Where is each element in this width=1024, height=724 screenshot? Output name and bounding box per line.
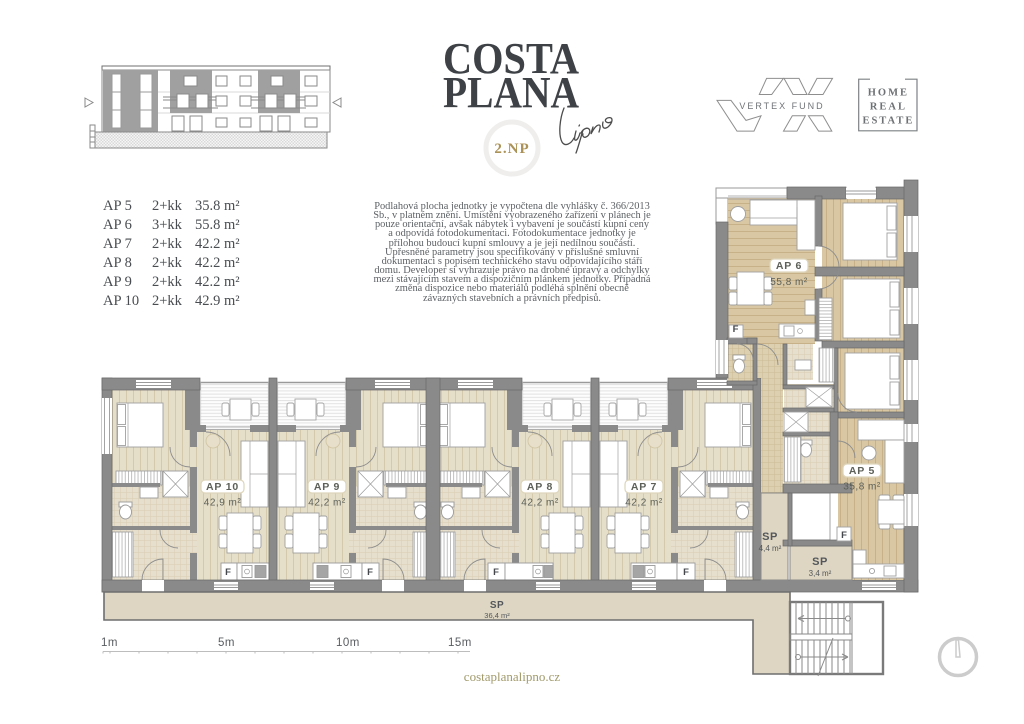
svg-text:F: F (493, 567, 499, 578)
svg-text:SP: SP (490, 600, 504, 611)
svg-text:F: F (841, 530, 847, 541)
svg-text:42,2 m²: 42,2 m² (625, 498, 663, 509)
svg-text:AP 9: AP 9 (314, 481, 340, 493)
svg-text:15m: 15m (448, 637, 472, 649)
svg-text:F: F (225, 567, 231, 578)
svg-text:5m: 5m (218, 637, 235, 649)
svg-text:10m: 10m (336, 637, 360, 649)
svg-text:AP 6: AP 6 (776, 260, 802, 272)
svg-text:42,9 m²: 42,9 m² (204, 498, 242, 509)
svg-text:36,4 m²: 36,4 m² (484, 611, 510, 620)
svg-text:AP 10: AP 10 (206, 481, 239, 493)
svg-text:F: F (367, 567, 373, 578)
svg-text:F: F (733, 324, 739, 335)
svg-text:AP 8: AP 8 (527, 481, 553, 493)
svg-text:35,8 m²: 35,8 m² (843, 482, 881, 493)
svg-text:SP: SP (762, 531, 778, 543)
svg-text:42,2 m²: 42,2 m² (521, 498, 559, 509)
svg-text:3,4 m²: 3,4 m² (809, 569, 832, 578)
svg-text:AP 5: AP 5 (849, 465, 875, 477)
svg-text:SP: SP (812, 556, 828, 568)
svg-text:1m: 1m (101, 637, 118, 649)
svg-text:42,2 m²: 42,2 m² (308, 498, 346, 509)
svg-text:4,4 m²: 4,4 m² (759, 544, 782, 553)
svg-text:55,8 m²: 55,8 m² (770, 277, 808, 288)
svg-text:F: F (683, 567, 689, 578)
svg-text:AP 7: AP 7 (631, 481, 657, 493)
